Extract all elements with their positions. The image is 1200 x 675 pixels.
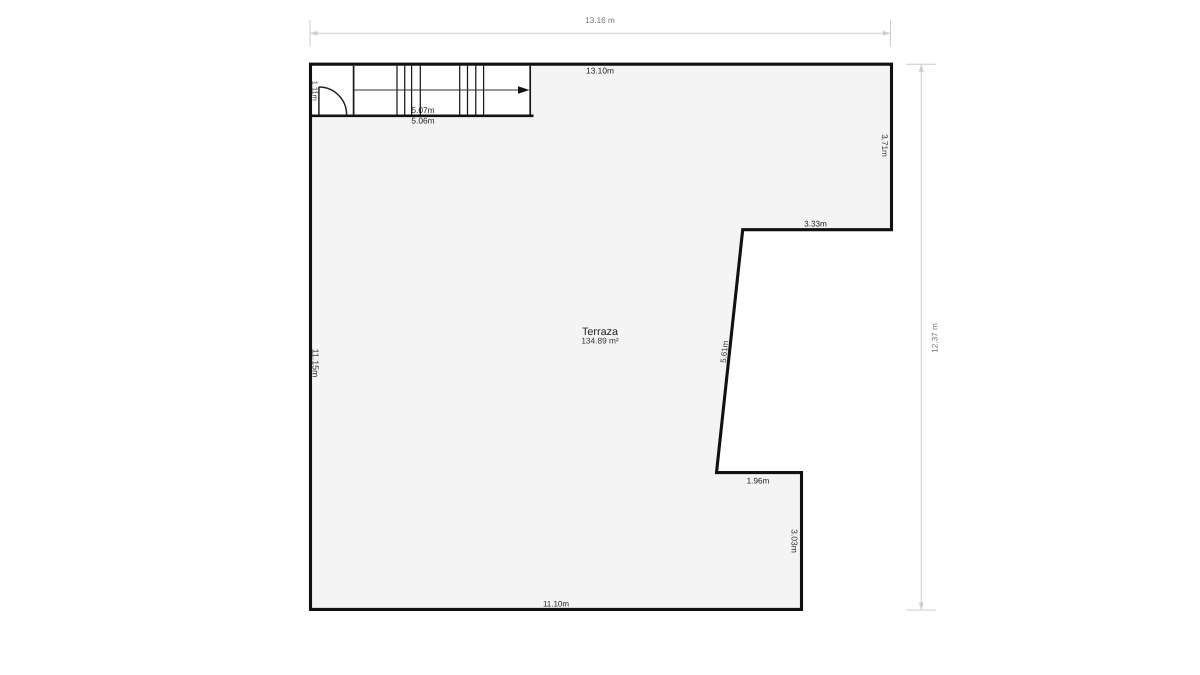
svg-text:11.15m: 11.15m <box>311 349 321 378</box>
svg-text:12.37 m: 12.37 m <box>930 323 939 353</box>
svg-text:13.10m: 13.10m <box>586 66 614 76</box>
svg-text:3.03m: 3.03m <box>790 529 800 553</box>
svg-text:5.07m: 5.07m <box>411 105 434 115</box>
svg-text:5.06m: 5.06m <box>411 116 434 126</box>
svg-text:3.33m: 3.33m <box>804 220 827 229</box>
svg-text:11.10m: 11.10m <box>543 600 569 609</box>
svg-text:134.89 m²: 134.89 m² <box>581 335 619 345</box>
svg-text:1.96m: 1.96m <box>747 477 770 486</box>
svg-text:1.11m: 1.11m <box>311 81 320 101</box>
svg-text:13.16 m: 13.16 m <box>585 16 615 25</box>
svg-text:3.71m: 3.71m <box>880 134 889 157</box>
